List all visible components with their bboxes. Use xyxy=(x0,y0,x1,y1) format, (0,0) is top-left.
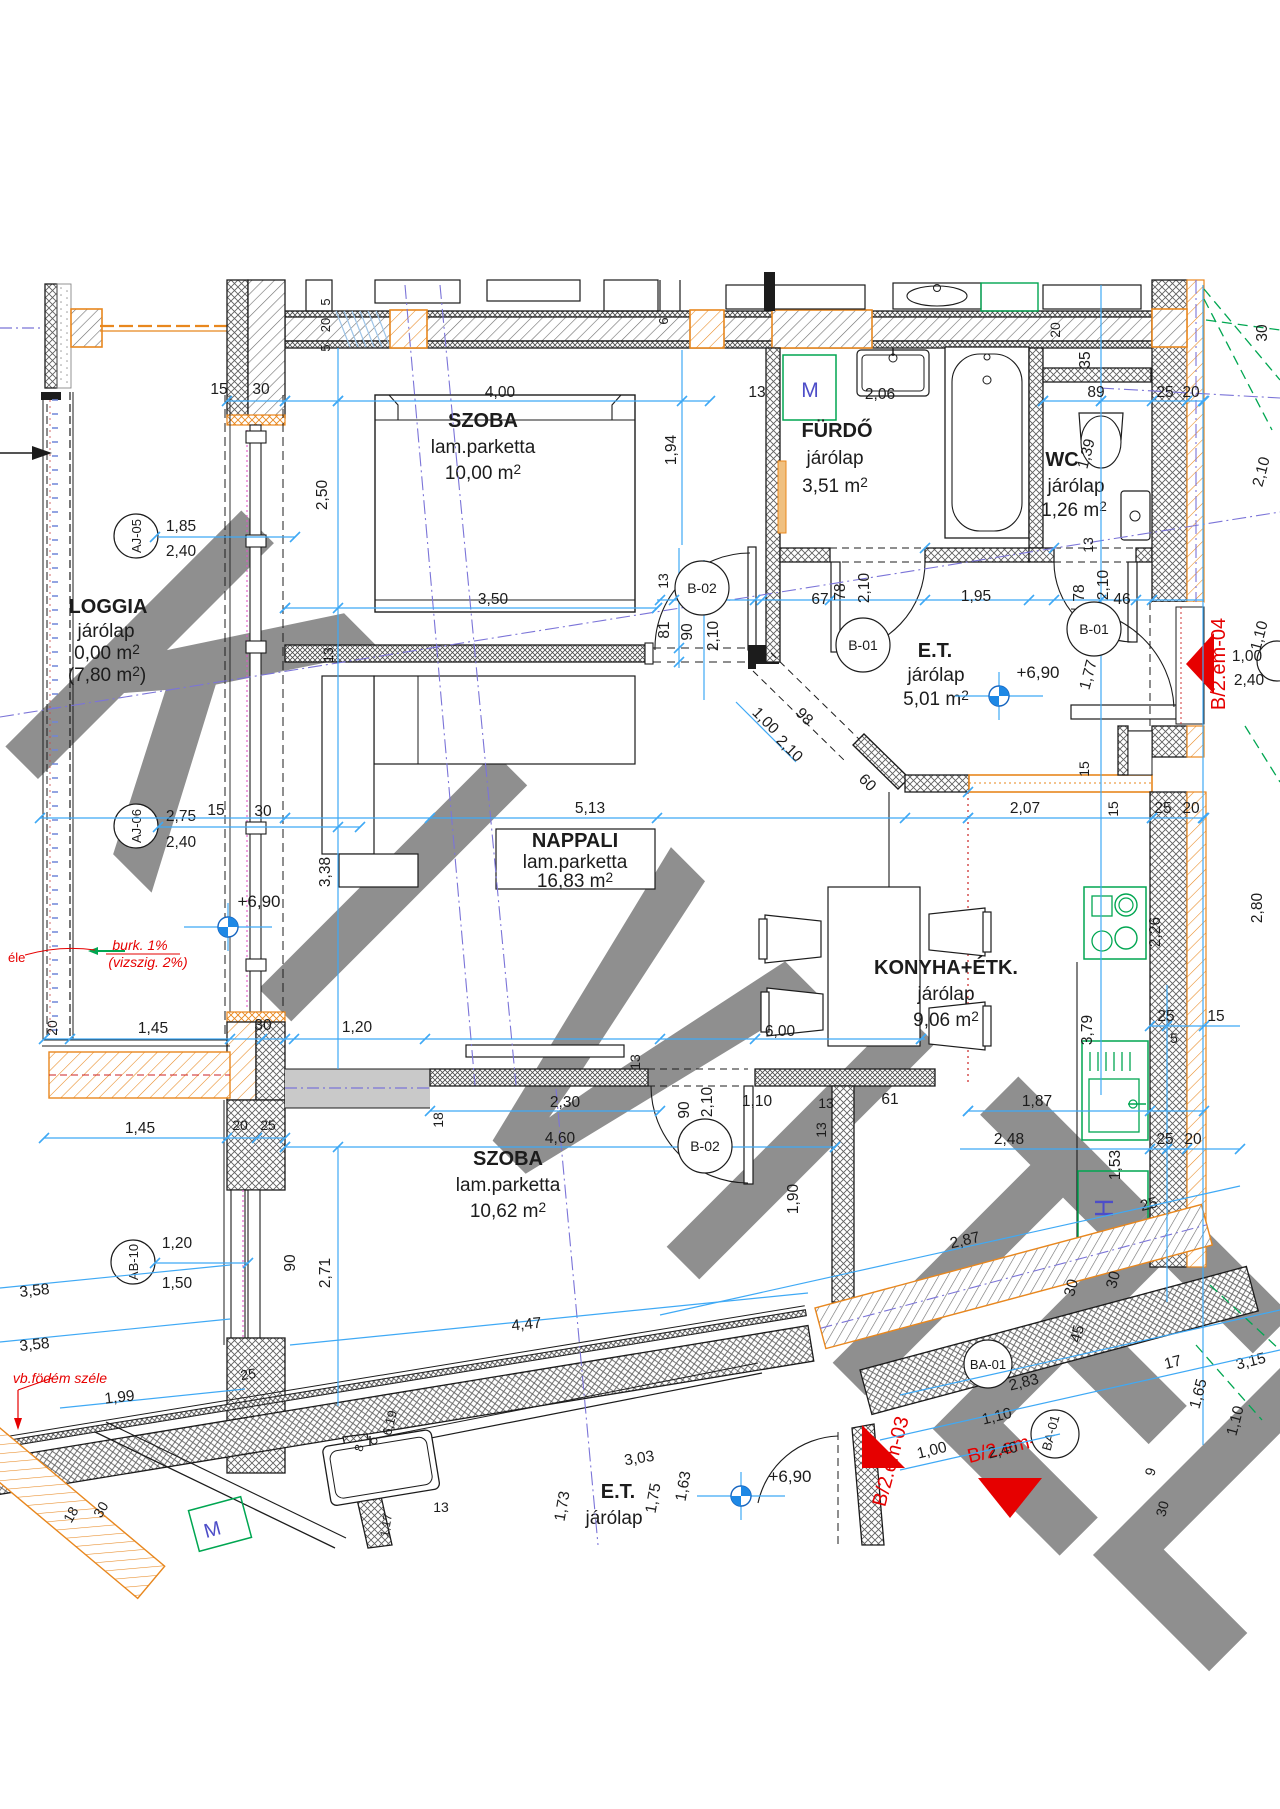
svg-text:46: 46 xyxy=(1113,591,1130,608)
svg-text:1,87: 1,87 xyxy=(1022,1093,1052,1110)
svg-text:2,30: 2,30 xyxy=(550,1094,581,1111)
svg-text:éle: éle xyxy=(8,950,25,965)
svg-text:1,20: 1,20 xyxy=(342,1019,373,1036)
svg-text:1,45: 1,45 xyxy=(125,1120,155,1137)
svg-text:LOGGIA: LOGGIA xyxy=(69,596,148,618)
svg-text:2,40: 2,40 xyxy=(1234,672,1265,689)
svg-text:+6,90: +6,90 xyxy=(1016,663,1059,682)
svg-text:3,51 m2: 3,51 m2 xyxy=(802,475,868,497)
svg-text:78: 78 xyxy=(832,583,849,600)
svg-text:30: 30 xyxy=(1254,324,1271,342)
svg-text:4,47: 4,47 xyxy=(511,1314,543,1334)
svg-text:25: 25 xyxy=(239,1365,257,1383)
svg-text:90: 90 xyxy=(676,1101,693,1119)
svg-text:25: 25 xyxy=(1154,800,1171,817)
svg-text:járólap: járólap xyxy=(916,984,974,1005)
svg-text:0,00 m2: 0,00 m2 xyxy=(74,642,140,664)
svg-text:2,26: 2,26 xyxy=(1147,917,1164,947)
svg-text:4,00: 4,00 xyxy=(485,384,516,401)
svg-text:9,06 m2: 9,06 m2 xyxy=(913,1009,979,1031)
svg-text:AJ-05: AJ-05 xyxy=(129,519,144,553)
svg-text:(vizszig. 2%): (vizszig. 2%) xyxy=(108,954,187,970)
svg-text:B-01: B-01 xyxy=(1079,621,1109,637)
svg-text:20: 20 xyxy=(1182,384,1200,401)
svg-text:13: 13 xyxy=(813,1122,829,1138)
svg-text:2,75: 2,75 xyxy=(166,808,196,825)
svg-text:vb.födém széle: vb.födém széle xyxy=(13,1370,107,1386)
svg-text:25: 25 xyxy=(1157,1008,1174,1025)
svg-text:15: 15 xyxy=(1076,761,1092,777)
svg-text:90: 90 xyxy=(679,623,696,641)
svg-text:3,50: 3,50 xyxy=(478,591,509,608)
svg-text:2,07: 2,07 xyxy=(1010,800,1040,817)
svg-text:B-02: B-02 xyxy=(690,1138,720,1154)
svg-text:BA-01: BA-01 xyxy=(970,1357,1006,1372)
svg-text:járólap: járólap xyxy=(805,448,863,469)
svg-text:30: 30 xyxy=(252,381,270,398)
svg-text:1,53: 1,53 xyxy=(1107,1150,1124,1180)
svg-text:5: 5 xyxy=(318,344,333,351)
svg-text:25: 25 xyxy=(1156,1131,1173,1148)
svg-text:3,38: 3,38 xyxy=(317,857,334,887)
svg-text:E.T.: E.T. xyxy=(601,1481,635,1503)
svg-text:16,83 m2: 16,83 m2 xyxy=(537,870,613,892)
svg-text:13: 13 xyxy=(748,384,765,401)
svg-text:35: 35 xyxy=(1077,351,1094,368)
svg-text:2,50: 2,50 xyxy=(314,480,331,511)
svg-text:1,90: 1,90 xyxy=(785,1184,802,1215)
svg-text:2,80: 2,80 xyxy=(1249,893,1266,924)
svg-text:25: 25 xyxy=(260,1117,276,1133)
svg-text:10,00 m2: 10,00 m2 xyxy=(445,462,521,484)
svg-text:15: 15 xyxy=(1105,801,1121,817)
svg-text:61: 61 xyxy=(881,1091,898,1108)
svg-text:90: 90 xyxy=(282,1254,299,1272)
svg-text:E.T.: E.T. xyxy=(918,640,952,662)
svg-text:SZOBA: SZOBA xyxy=(473,1148,543,1170)
svg-text:13: 13 xyxy=(320,647,336,663)
svg-text:2,06: 2,06 xyxy=(865,386,895,403)
svg-text:6,00: 6,00 xyxy=(765,1023,796,1040)
svg-text:10,62 m2: 10,62 m2 xyxy=(470,1200,546,1222)
svg-text:25: 25 xyxy=(1156,384,1173,401)
svg-text:13: 13 xyxy=(655,573,671,589)
svg-text:5: 5 xyxy=(318,298,333,305)
svg-text:1,85: 1,85 xyxy=(166,518,196,535)
svg-text:KONYHA+ÉTK.: KONYHA+ÉTK. xyxy=(874,956,1018,979)
svg-text:1,50: 1,50 xyxy=(162,1275,193,1292)
svg-text:78: 78 xyxy=(1071,584,1088,601)
svg-text:13: 13 xyxy=(818,1095,834,1111)
svg-text:1,95: 1,95 xyxy=(961,588,991,605)
svg-text:2,10: 2,10 xyxy=(705,621,722,652)
svg-text:5,01 m2: 5,01 m2 xyxy=(903,688,969,710)
svg-text:3,58: 3,58 xyxy=(19,1335,51,1355)
svg-text:M: M xyxy=(801,379,819,402)
svg-text:2,10: 2,10 xyxy=(856,573,873,604)
svg-text:SZOBA: SZOBA xyxy=(448,410,518,432)
svg-text:20: 20 xyxy=(318,318,333,332)
svg-text:20: 20 xyxy=(1182,800,1200,817)
svg-text:1,26 m2: 1,26 m2 xyxy=(1041,499,1107,521)
svg-text:20: 20 xyxy=(1184,1131,1202,1148)
svg-text:4,60: 4,60 xyxy=(545,1130,576,1147)
svg-text:2,10: 2,10 xyxy=(699,1087,716,1118)
svg-text:lam.parketta: lam.parketta xyxy=(431,437,536,458)
svg-text:20: 20 xyxy=(1047,322,1063,338)
svg-text:1,94: 1,94 xyxy=(663,435,680,466)
svg-text:2,71: 2,71 xyxy=(317,1258,334,1288)
svg-text:15: 15 xyxy=(207,802,224,819)
svg-text:NAPPALI: NAPPALI xyxy=(532,830,618,852)
svg-text:+6,90: +6,90 xyxy=(768,1467,811,1486)
svg-text:FÜRDŐ: FÜRDŐ xyxy=(801,419,872,442)
svg-text:15: 15 xyxy=(210,381,227,398)
svg-text:2,10: 2,10 xyxy=(1095,570,1112,601)
svg-text:5: 5 xyxy=(1170,1030,1178,1046)
svg-text:+6,90: +6,90 xyxy=(237,892,280,911)
svg-text:1,99: 1,99 xyxy=(104,1387,136,1407)
svg-text:13: 13 xyxy=(433,1499,449,1515)
svg-text:67: 67 xyxy=(811,591,828,608)
svg-text:18: 18 xyxy=(430,1112,446,1128)
svg-text:5,13: 5,13 xyxy=(575,800,605,817)
svg-text:2,40: 2,40 xyxy=(166,834,197,851)
svg-text:89: 89 xyxy=(1087,384,1104,401)
svg-text:járólap: járólap xyxy=(906,665,964,686)
svg-text:járólap: járólap xyxy=(1046,476,1104,497)
svg-text:B/2.em-04: B/2.em-04 xyxy=(1208,618,1230,710)
svg-text:30: 30 xyxy=(254,1017,272,1034)
svg-text:B-01: B-01 xyxy=(848,637,878,653)
svg-text:1,20: 1,20 xyxy=(162,1235,193,1252)
svg-text:2,40: 2,40 xyxy=(166,543,197,560)
svg-text:1,45: 1,45 xyxy=(138,1020,168,1037)
svg-text:6: 6 xyxy=(656,317,671,324)
svg-text:1,00: 1,00 xyxy=(1232,648,1263,665)
svg-text:13: 13 xyxy=(627,1054,643,1070)
svg-text:B-02: B-02 xyxy=(687,580,717,596)
svg-text:13: 13 xyxy=(1080,537,1096,553)
svg-text:járólap: járólap xyxy=(584,1508,642,1529)
svg-text:WC: WC xyxy=(1045,449,1078,471)
svg-text:lam.parketta: lam.parketta xyxy=(456,1175,561,1196)
svg-text:20: 20 xyxy=(232,1117,248,1133)
svg-text:20: 20 xyxy=(44,1020,60,1036)
svg-text:3,58: 3,58 xyxy=(19,1281,51,1301)
svg-text:15: 15 xyxy=(1207,1008,1224,1025)
svg-text:81: 81 xyxy=(656,621,673,638)
svg-text:H: H xyxy=(1089,1199,1119,1218)
svg-text:AJ-06: AJ-06 xyxy=(129,809,144,843)
svg-text:1,10: 1,10 xyxy=(742,1093,773,1110)
svg-text:3,79: 3,79 xyxy=(1079,1015,1096,1045)
svg-text:2,48: 2,48 xyxy=(994,1131,1024,1148)
svg-text:járólap: járólap xyxy=(76,621,134,642)
